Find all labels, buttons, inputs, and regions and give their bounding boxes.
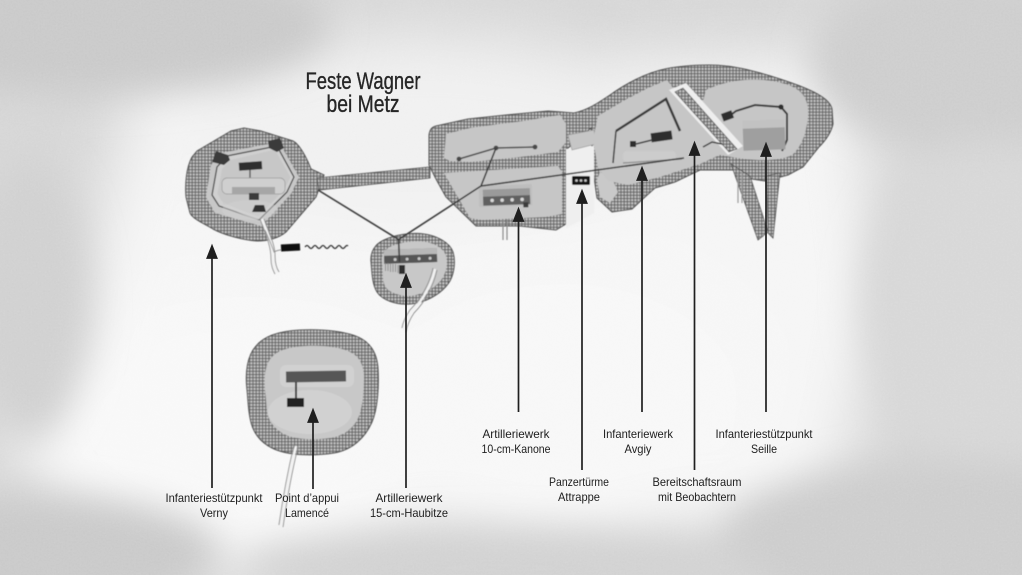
- svg-text:Seille: Seille: [751, 442, 777, 456]
- svg-text:Panzertürme: Panzertürme: [549, 475, 609, 489]
- svg-text:mit Beobachtern: mit Beobachtern: [658, 490, 736, 504]
- svg-text:bei Metz: bei Metz: [327, 91, 400, 118]
- svg-text:10-cm-Kanone: 10-cm-Kanone: [482, 442, 551, 456]
- svg-text:Point d’appui: Point d’appui: [275, 491, 339, 505]
- svg-text:Verny: Verny: [200, 506, 228, 520]
- svg-text:Artilleriewerk: Artilleriewerk: [376, 491, 444, 505]
- svg-text:Avgiy: Avgiy: [625, 442, 652, 456]
- svg-text:Attrappe: Attrappe: [558, 490, 600, 504]
- svg-text:Bereitschaftsraum: Bereitschaftsraum: [653, 475, 742, 489]
- svg-text:Artilleriewerk: Artilleriewerk: [483, 427, 551, 441]
- svg-text:Infanteriestützpunkt: Infanteriestützpunkt: [716, 427, 814, 441]
- svg-text:Infanteriestützpunkt: Infanteriestützpunkt: [166, 491, 264, 505]
- svg-text:Infanteriewerk: Infanteriewerk: [603, 427, 674, 441]
- svg-text:Lamencé: Lamencé: [285, 506, 329, 520]
- svg-text:15-cm-Haubitze: 15-cm-Haubitze: [370, 506, 448, 520]
